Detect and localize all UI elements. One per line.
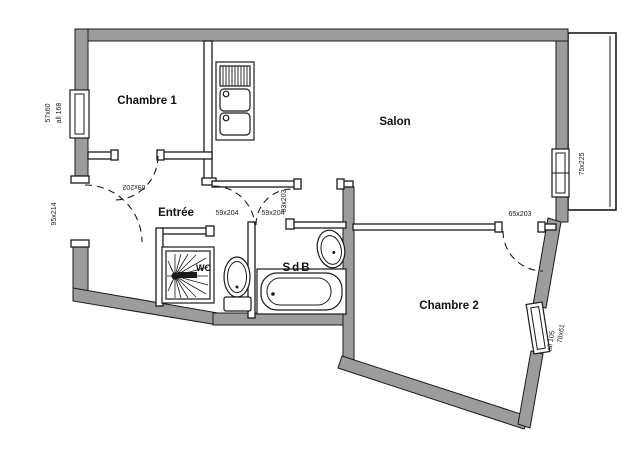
entry-door-size-label: 95x214 xyxy=(51,202,58,225)
chambre1-label: Chambre 1 xyxy=(117,95,177,107)
entree-label: Entrée xyxy=(158,207,194,219)
door-arcs xyxy=(85,156,543,271)
chambre2-window-size-label: 78x61 xyxy=(557,324,567,344)
bathtub-icon xyxy=(257,269,346,314)
chambre1-door-arc xyxy=(114,156,158,200)
floor-plan-drawing: Chambre 1 Salon Entrée SdB WC Chambre 2 … xyxy=(0,0,640,461)
sdb-label: SdB xyxy=(283,262,312,274)
floor-plan-page: Chambre 1 Salon Entrée SdB WC Chambre 2 … xyxy=(0,0,640,461)
salon-window-size-label: 75x225 xyxy=(579,152,586,175)
wall-chambre2-right-slant-upper xyxy=(533,218,561,308)
chambre2-top-wall-west xyxy=(353,224,498,230)
chambre2-door-jamb-left xyxy=(495,222,502,232)
kitchen-sink-icon xyxy=(216,62,254,140)
wall-chambre1-entree-west xyxy=(88,152,114,159)
salon-label: Salon xyxy=(379,116,410,128)
entry-door-jamb-top xyxy=(71,176,89,183)
hall-north-wall xyxy=(212,181,296,187)
wall-bathroom-bottom xyxy=(213,313,354,325)
salon-opening-jamb-left xyxy=(294,179,301,189)
wall-chambre2-right-slant-lower xyxy=(518,351,543,428)
wall-left-lower xyxy=(73,240,88,292)
chambre1-window xyxy=(70,90,89,138)
wc-door-jamb xyxy=(206,226,214,236)
chambre1-door-jamb-left xyxy=(111,150,118,160)
balcony xyxy=(568,33,616,210)
toilet-icon xyxy=(224,257,251,311)
chambre2-window-sill-label: all 105 xyxy=(546,330,556,352)
chambre1-window-size-label: 57x60 xyxy=(45,103,52,122)
entry-door-arc xyxy=(85,185,142,242)
wall-right-lower xyxy=(556,196,568,222)
entry-door-jamb-bottom xyxy=(71,240,89,247)
wall-chambre1-entree-east xyxy=(162,152,212,159)
wc-door-size-label: 59x204 xyxy=(216,210,239,217)
wc-top-wall xyxy=(162,228,212,234)
wall-chambre2-bottom-slanted xyxy=(338,356,530,429)
chambre2-door-size-label: 65x203 xyxy=(509,211,532,218)
salon-window xyxy=(552,149,569,197)
salon-opening-jamb-right xyxy=(337,179,344,189)
wall-right-upper xyxy=(556,41,568,150)
chambre2-label: Chambre 2 xyxy=(419,300,478,312)
sdb-door-jamb xyxy=(286,219,294,229)
shower-icon xyxy=(162,247,214,303)
wc-label: WC xyxy=(196,263,211,273)
hall-salon-opening-size-label: 83x203 xyxy=(281,189,288,212)
sdb-top-wall xyxy=(292,222,346,228)
chambre1-window-sill-label: all 168 xyxy=(56,103,63,124)
chambre1-door-size-label: 69x202 xyxy=(122,183,145,190)
chambre2-door-arc xyxy=(503,231,543,271)
chambre2-door-jamb-right xyxy=(538,222,545,232)
wall-top xyxy=(75,29,568,41)
